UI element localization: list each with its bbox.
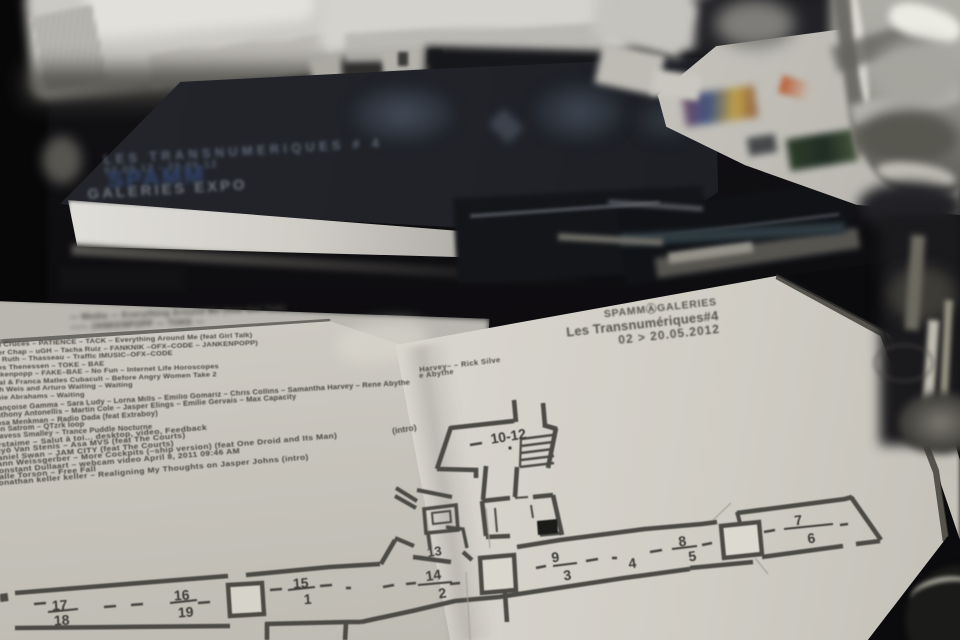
svg-text:3: 3	[562, 567, 572, 584]
svg-text:13: 13	[426, 543, 442, 560]
svg-text:5: 5	[687, 548, 697, 565]
svg-text:19: 19	[177, 603, 194, 620]
svg-text:6: 6	[806, 530, 816, 547]
svg-text:2: 2	[437, 585, 447, 602]
svg-text:8: 8	[677, 533, 687, 550]
svg-text:14: 14	[424, 566, 442, 584]
svg-text:4: 4	[627, 555, 637, 572]
svg-text:7: 7	[793, 512, 803, 529]
svg-text:9: 9	[550, 549, 560, 566]
svg-text:16: 16	[173, 586, 190, 603]
svg-text:1: 1	[303, 591, 312, 608]
svg-text:15: 15	[292, 574, 309, 591]
svg-text:18: 18	[53, 611, 70, 628]
